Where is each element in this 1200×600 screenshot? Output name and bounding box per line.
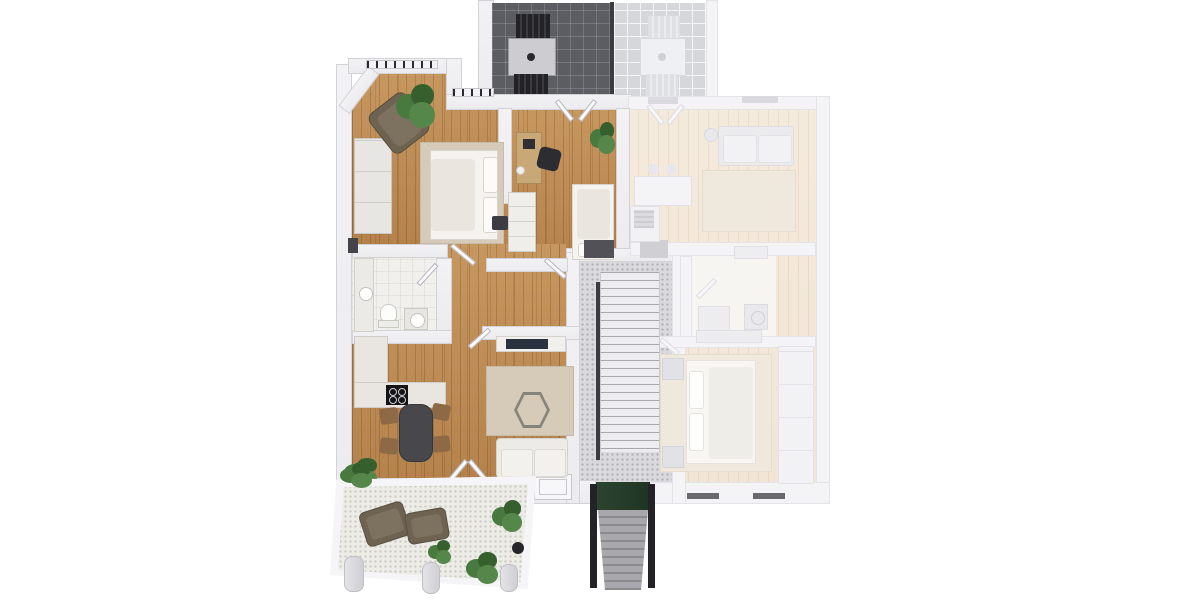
entrance-mat — [596, 482, 650, 510]
balcony-plant — [492, 500, 526, 532]
dimmed-window-bar — [753, 493, 785, 499]
entrance-side-wall — [590, 484, 597, 588]
duvet — [709, 367, 753, 459]
balcony-pot — [512, 542, 524, 554]
office-plant — [590, 122, 618, 154]
bath-sink — [404, 308, 428, 330]
terrace-chair-dimmed — [648, 16, 680, 40]
shelf-unit — [508, 192, 536, 252]
dining-table — [399, 404, 433, 462]
outer-wall-left — [336, 64, 352, 504]
dimmed-top-window — [648, 97, 678, 104]
entrance-side-wall — [648, 484, 655, 588]
bedroom-south-wall — [352, 244, 448, 258]
outer-wall-right-dimmed — [816, 96, 830, 504]
bedroom-window — [452, 88, 494, 97]
dimmed-sideboard — [734, 246, 768, 259]
toilet-tank — [378, 320, 399, 328]
dimmed-bath-west-wall — [680, 256, 692, 340]
desk-lamp — [516, 166, 525, 175]
sofa-cushion — [534, 449, 566, 477]
terrace-table-decor-dimmed — [658, 53, 666, 61]
balcony-plant — [466, 552, 502, 584]
support-pillar — [500, 564, 518, 592]
doormat-left-unit — [584, 240, 614, 258]
stair-handrail — [596, 282, 600, 460]
dimmed-washer — [744, 304, 768, 330]
dining-chair — [379, 437, 399, 455]
dimmed-stool — [666, 164, 677, 175]
support-pillar — [344, 556, 364, 592]
terrace-chair-dimmed — [646, 74, 678, 96]
floor-plan-render — [0, 0, 1200, 600]
terrace-wall-right — [706, 0, 718, 102]
pillow — [689, 413, 704, 451]
dining-chair — [431, 403, 452, 422]
terrace-table-decor — [527, 53, 535, 61]
dining-chair — [431, 435, 451, 453]
sofa-cushion — [501, 449, 533, 477]
dimmed-nightstand — [662, 446, 684, 468]
terrace-chair — [516, 14, 550, 40]
bedroom-plant — [396, 84, 440, 128]
dimmed-window-bar — [687, 493, 719, 499]
bathroom-east-wall — [436, 258, 452, 338]
dimmed-bed — [686, 360, 756, 464]
duvet — [577, 189, 610, 239]
balcony-plant — [340, 462, 376, 488]
double-bed — [430, 150, 498, 240]
dimmed-floor-lamp — [704, 128, 718, 142]
dining-chair — [379, 407, 399, 425]
staircase — [600, 272, 660, 452]
entrance-steps — [598, 510, 648, 590]
french-balcony-window — [366, 60, 438, 69]
dimmed-rug — [702, 170, 796, 232]
dimmed-wardrobe — [778, 346, 814, 484]
sofa — [496, 438, 568, 478]
dimmed-console — [696, 330, 762, 343]
dimmed-stool — [648, 164, 659, 175]
kitchen-counter-tall — [354, 336, 388, 386]
tv — [506, 339, 548, 349]
bedside-stool — [492, 216, 508, 230]
support-pillar — [422, 562, 440, 594]
duvet — [431, 159, 475, 231]
party-wall — [616, 108, 630, 258]
basin — [359, 287, 373, 301]
dimmed-nightstand — [662, 358, 684, 380]
pillow — [483, 157, 498, 193]
wardrobe — [354, 138, 392, 234]
wall-radiator — [348, 238, 358, 253]
dimmed-top-window — [742, 96, 778, 103]
bath-vanity — [354, 258, 374, 332]
dimmed-sofa — [718, 126, 794, 166]
cooktop — [386, 385, 408, 405]
pillow — [689, 371, 704, 409]
dimmed-appliance — [634, 210, 654, 228]
balcony-plant — [428, 540, 454, 564]
dimmed-kitchen-island — [634, 176, 692, 206]
doormat-right-unit — [640, 240, 668, 258]
